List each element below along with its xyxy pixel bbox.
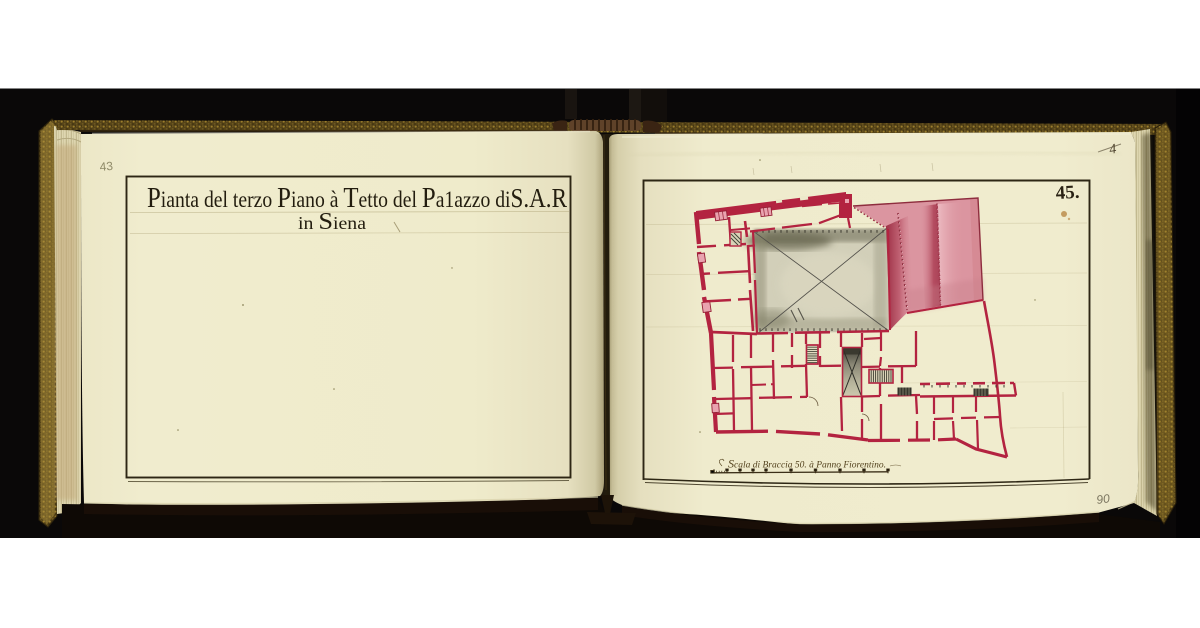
svg-text:Pianta del terzo Piano à Tetto: Pianta del terzo Piano à Tetto del Pa1az…	[147, 182, 567, 214]
svg-text:90: 90	[1095, 491, 1110, 507]
svg-text:43: 43	[99, 159, 114, 174]
svg-text:45.: 45.	[1055, 182, 1080, 204]
svg-text:in Siena: in Siena	[298, 209, 366, 235]
